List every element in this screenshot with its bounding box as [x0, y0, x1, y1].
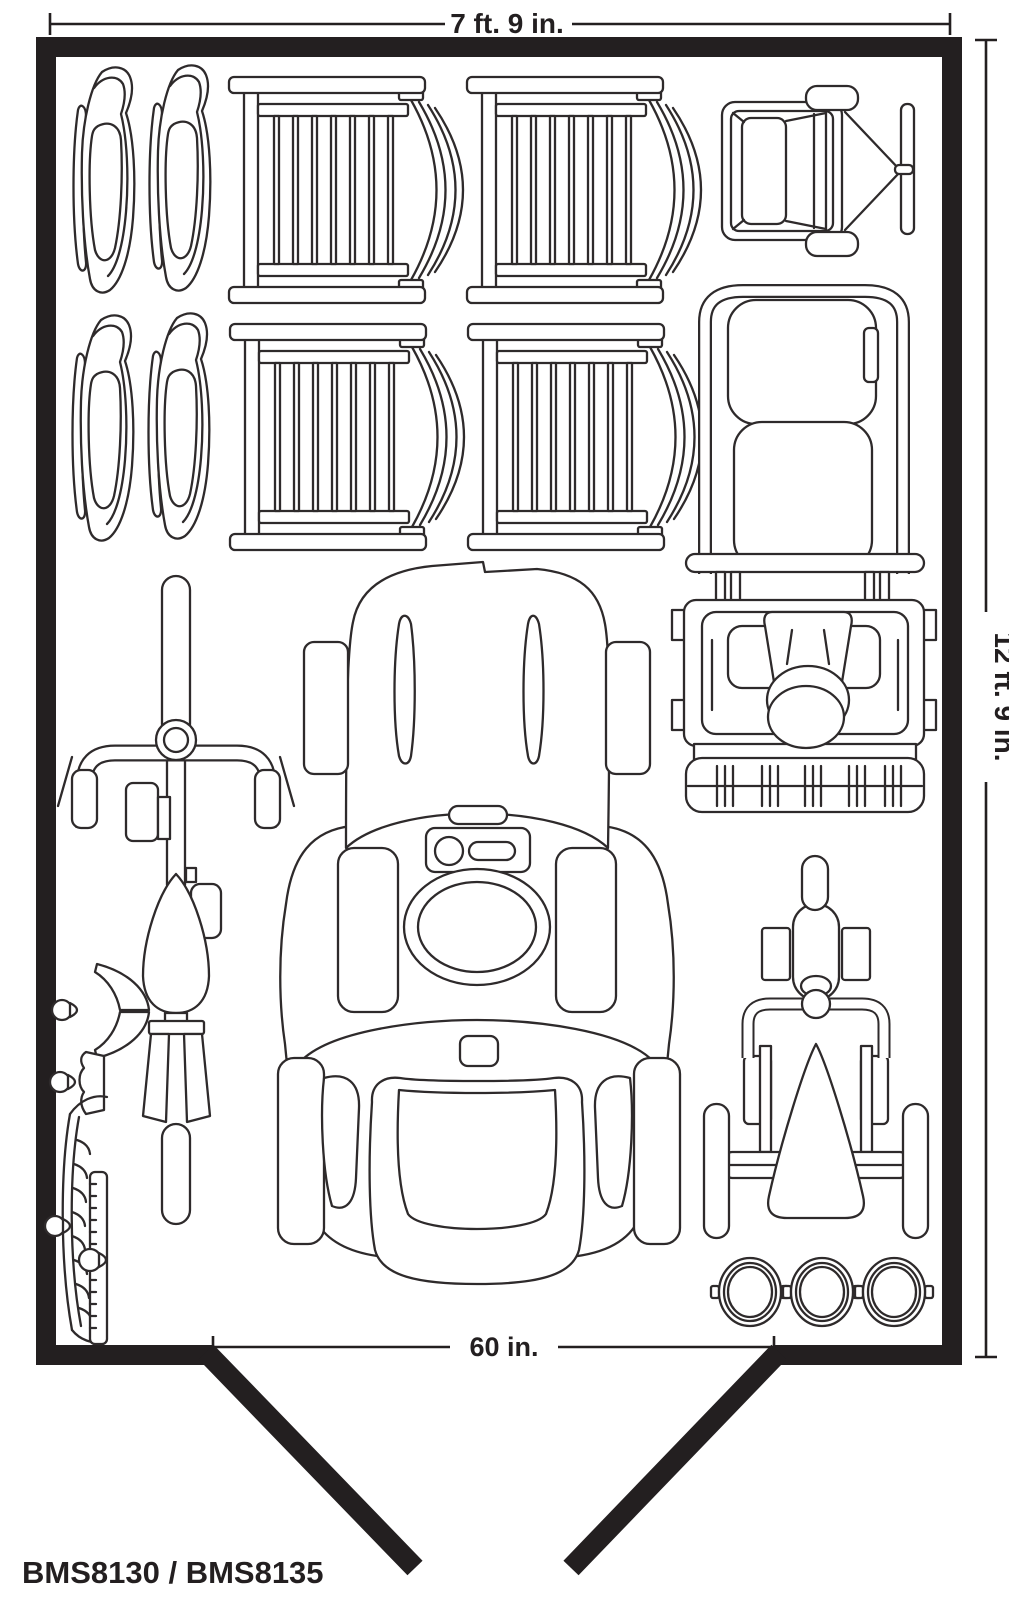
- stacked-chair-4: [468, 324, 702, 550]
- cart-wheel-top: [806, 86, 858, 110]
- riding-mower: [278, 562, 680, 1284]
- mower-front-wheel-left: [304, 642, 348, 774]
- model-label: BMS8130 / BMS8135: [22, 1555, 324, 1590]
- bucket-2: [783, 1258, 861, 1326]
- dimension-right-depth: 12 ft. 9 in.: [975, 40, 1009, 1357]
- ski-sled-1: [74, 67, 135, 292]
- bucket-3: [855, 1258, 933, 1326]
- gokart-seat: [768, 1044, 864, 1218]
- cart-wheel-bottom: [806, 232, 858, 256]
- dimension-door-width: 60 in.: [213, 1332, 774, 1362]
- mower-rear-wheel-left: [278, 1058, 324, 1244]
- bicycle: [58, 576, 294, 1224]
- top-width-label: 7 ft. 9 in.: [450, 8, 564, 39]
- ski-sled-4: [149, 313, 210, 538]
- door-width-label: 60 in.: [469, 1332, 538, 1362]
- bike-rear-wheel: [162, 1124, 190, 1224]
- gokart-front-wheel: [802, 856, 828, 910]
- garden-tools: [45, 964, 149, 1344]
- right-depth-label: 12 ft. 9 in.: [989, 632, 1009, 761]
- stacked-chair-1: [229, 77, 463, 303]
- snow-blower: [672, 554, 936, 812]
- ski-sled-2: [150, 65, 211, 290]
- garden-cart: [722, 86, 914, 256]
- hand-truck: [705, 291, 903, 574]
- gokart-rear-wheel-left: [704, 1104, 729, 1238]
- dimension-top-width: 7 ft. 9 in.: [50, 8, 950, 39]
- mower-rear-wheel-right: [634, 1058, 680, 1244]
- stacked-chair-2: [467, 77, 701, 303]
- door-panel-right: [571, 1352, 779, 1568]
- bucket-1: [711, 1258, 789, 1326]
- mower-front-wheel-right: [606, 642, 650, 774]
- ski-sled-3: [73, 315, 134, 540]
- gokart-rear-wheel-right: [903, 1104, 928, 1238]
- pedal-go-kart: [704, 856, 928, 1238]
- floor-plan-svg: 7 ft. 9 in. 12 ft. 9 in.: [0, 0, 1009, 1600]
- snowblower-handlebar: [686, 554, 924, 572]
- shed-floorplan-page: 7 ft. 9 in. 12 ft. 9 in.: [0, 0, 1009, 1600]
- stacked-chair-3: [230, 324, 464, 550]
- mower-seat: [370, 1078, 585, 1284]
- mower-steering-wheel: [404, 869, 550, 985]
- door-panel-left: [206, 1352, 415, 1568]
- bike-front-wheel: [162, 576, 190, 738]
